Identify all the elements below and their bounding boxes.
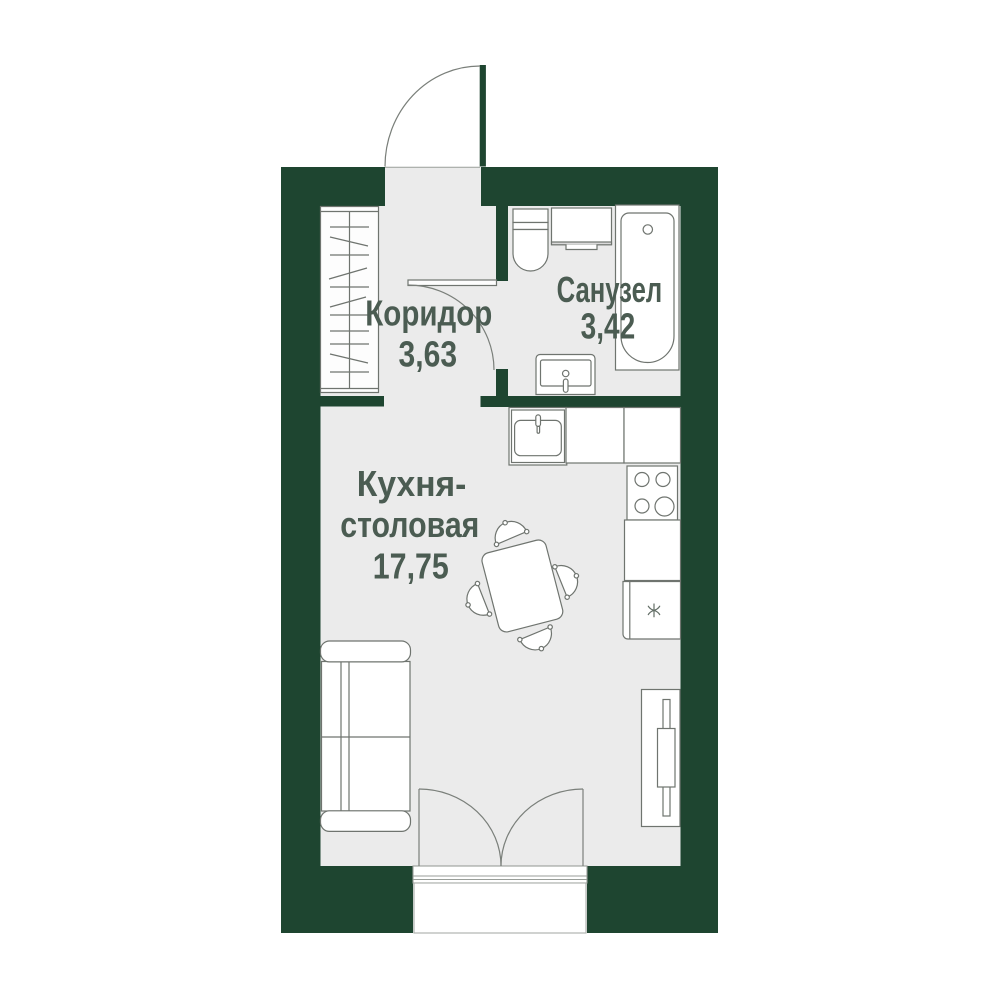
svg-text:Санузел: Санузел (557, 269, 663, 310)
svg-text:17,75: 17,75 (373, 545, 449, 586)
svg-text:столовая: столовая (340, 504, 479, 545)
svg-text:Кухня-: Кухня- (357, 463, 467, 504)
svg-text:3,42: 3,42 (581, 306, 636, 347)
svg-text:3,63: 3,63 (399, 334, 458, 375)
svg-text:Коридор: Коридор (365, 292, 492, 333)
